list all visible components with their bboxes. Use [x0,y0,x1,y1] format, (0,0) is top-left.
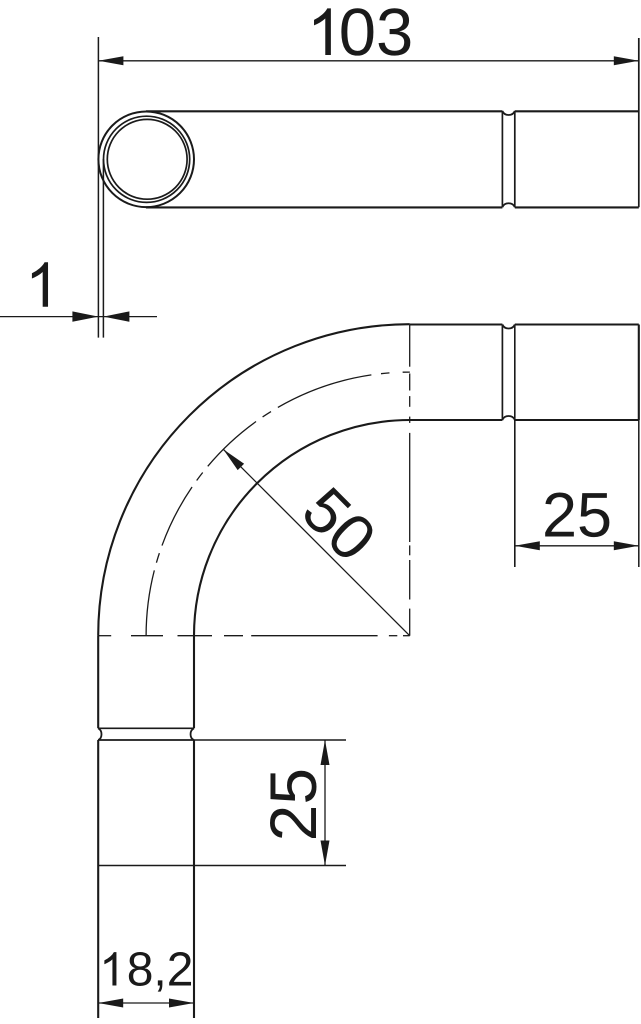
svg-text:25: 25 [542,480,612,550]
svg-text:03: 03 [339,0,414,70]
svg-text:25: 25 [256,768,330,841]
svg-text:8,2: 8,2 [127,944,194,997]
